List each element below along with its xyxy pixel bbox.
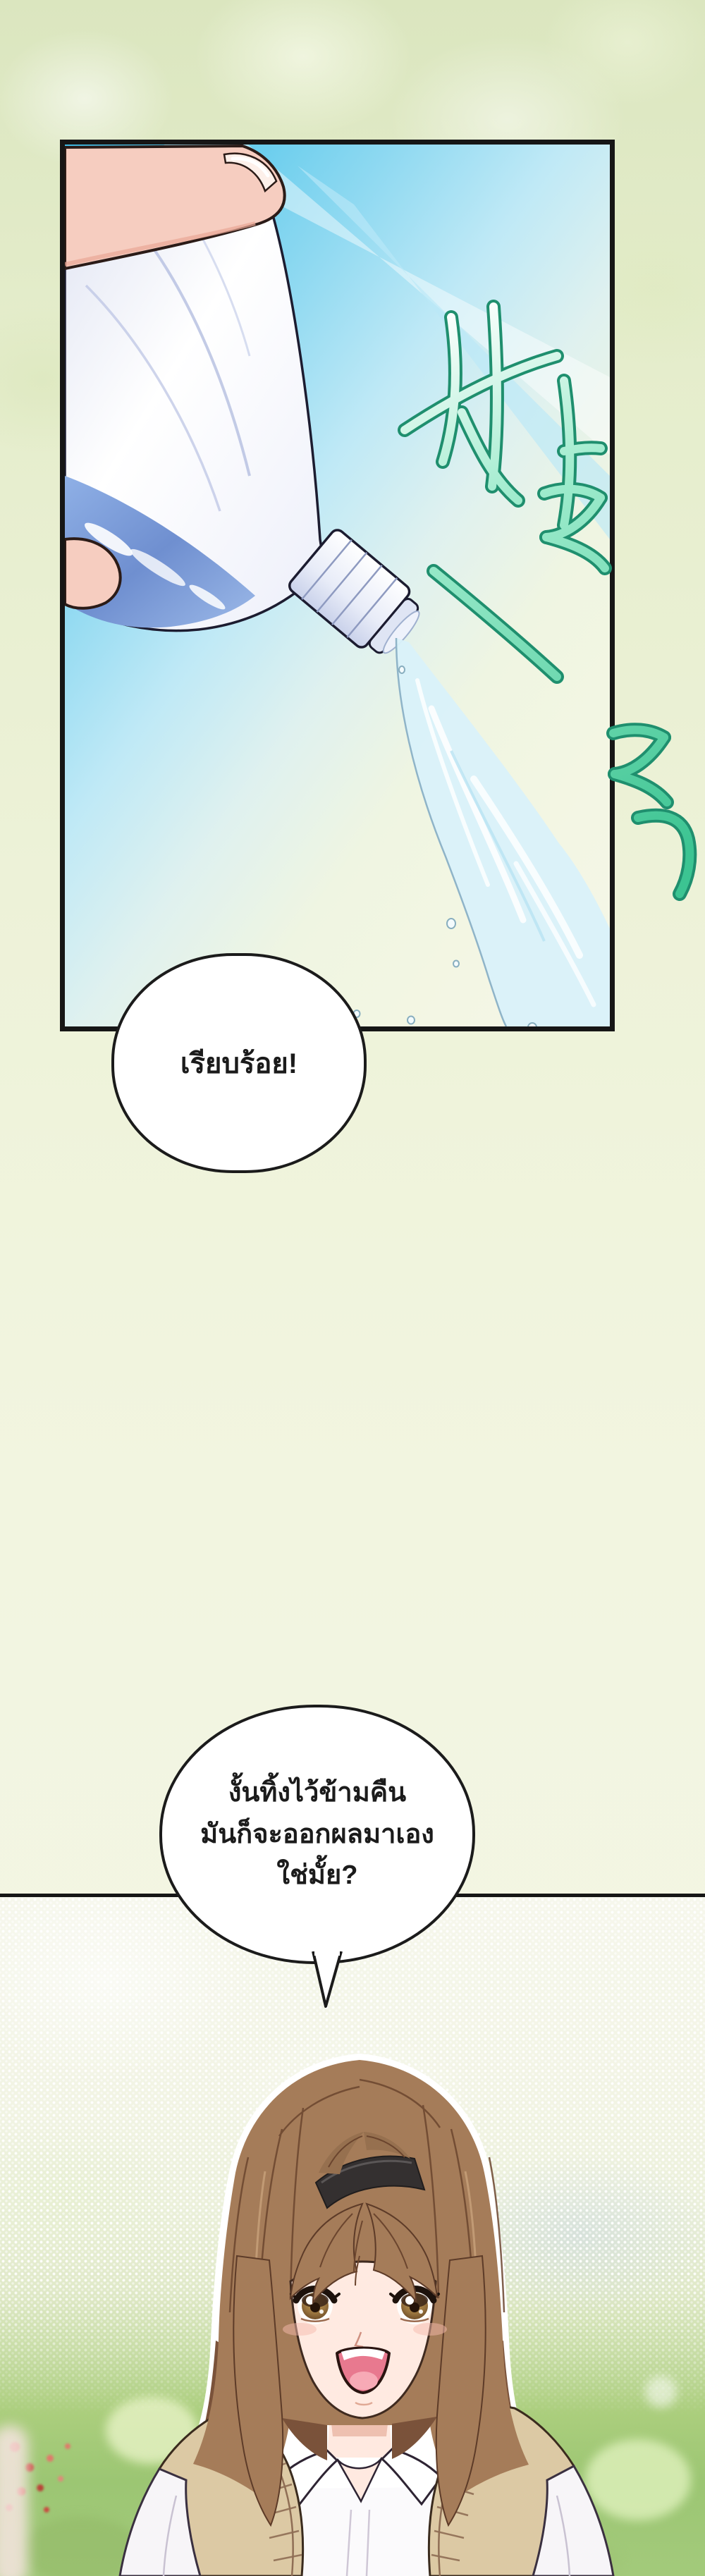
watering-panel: [60, 140, 615, 1031]
character-figure: [70, 2044, 634, 2576]
blush-left: [283, 2323, 317, 2336]
red-flower: [65, 2443, 70, 2449]
bubble-2-line-2: มันก็จะออกผลมาเอง: [200, 1814, 434, 1856]
speech-bubble-1: เรียบร้อย!: [111, 953, 367, 1173]
comic-page: เรียบร้อย!: [0, 0, 705, 2576]
character-artwork: [70, 2044, 634, 2576]
bubble-2-line-1: งั้นทิ้งไว้ข้ามคืน: [200, 1772, 434, 1814]
tongue: [350, 2372, 378, 2390]
bubble-1-text: เรียบร้อย!: [180, 1041, 298, 1086]
body: [120, 2407, 613, 2576]
blush-right: [413, 2323, 447, 2336]
red-flower: [58, 2476, 63, 2482]
red-flower: [37, 2484, 44, 2491]
panel-artwork: [65, 145, 610, 1026]
speech-bubble-2: งั้นทิ้งไว้ข้ามคืน มันก็จะออกผลมาเอง ใช่…: [159, 1705, 475, 1964]
foreground-blur-blob: [0, 2425, 28, 2576]
red-flower: [47, 2455, 54, 2462]
bubble-2-line-3: ใช่มั้ย?: [200, 1855, 434, 1896]
water-stream: [396, 638, 610, 1026]
red-flower: [44, 2507, 49, 2513]
bubble-2-tail: [309, 1951, 345, 2012]
sky-light-band-2: [298, 166, 610, 539]
